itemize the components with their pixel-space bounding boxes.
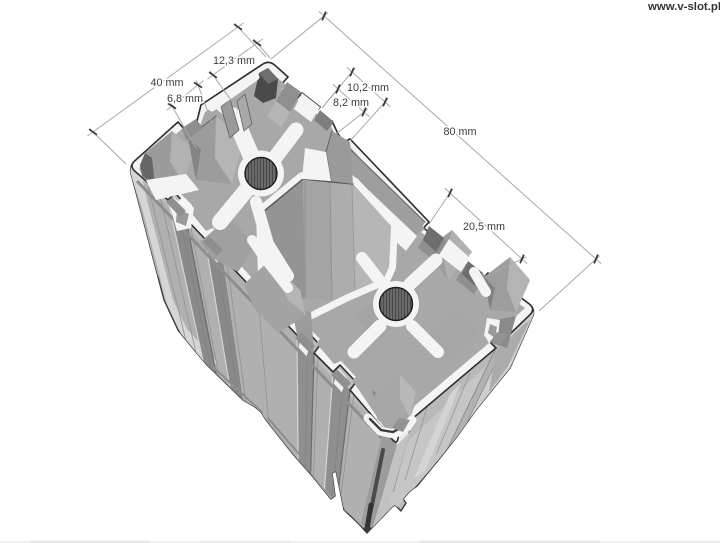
- svg-text:www.v-slot.pl: www.v-slot.pl: [647, 1, 720, 13]
- svg-text:10,2 mm: 10,2 mm: [347, 82, 389, 94]
- svg-text:80 mm: 80 mm: [444, 126, 477, 138]
- svg-text:8,2 mm: 8,2 mm: [333, 97, 369, 109]
- svg-text:40 mm: 40 mm: [151, 77, 184, 89]
- svg-text:20,5 mm: 20,5 mm: [463, 221, 505, 233]
- svg-text:6,8 mm: 6,8 mm: [167, 93, 203, 105]
- svg-text:12,3 mm: 12,3 mm: [213, 55, 255, 67]
